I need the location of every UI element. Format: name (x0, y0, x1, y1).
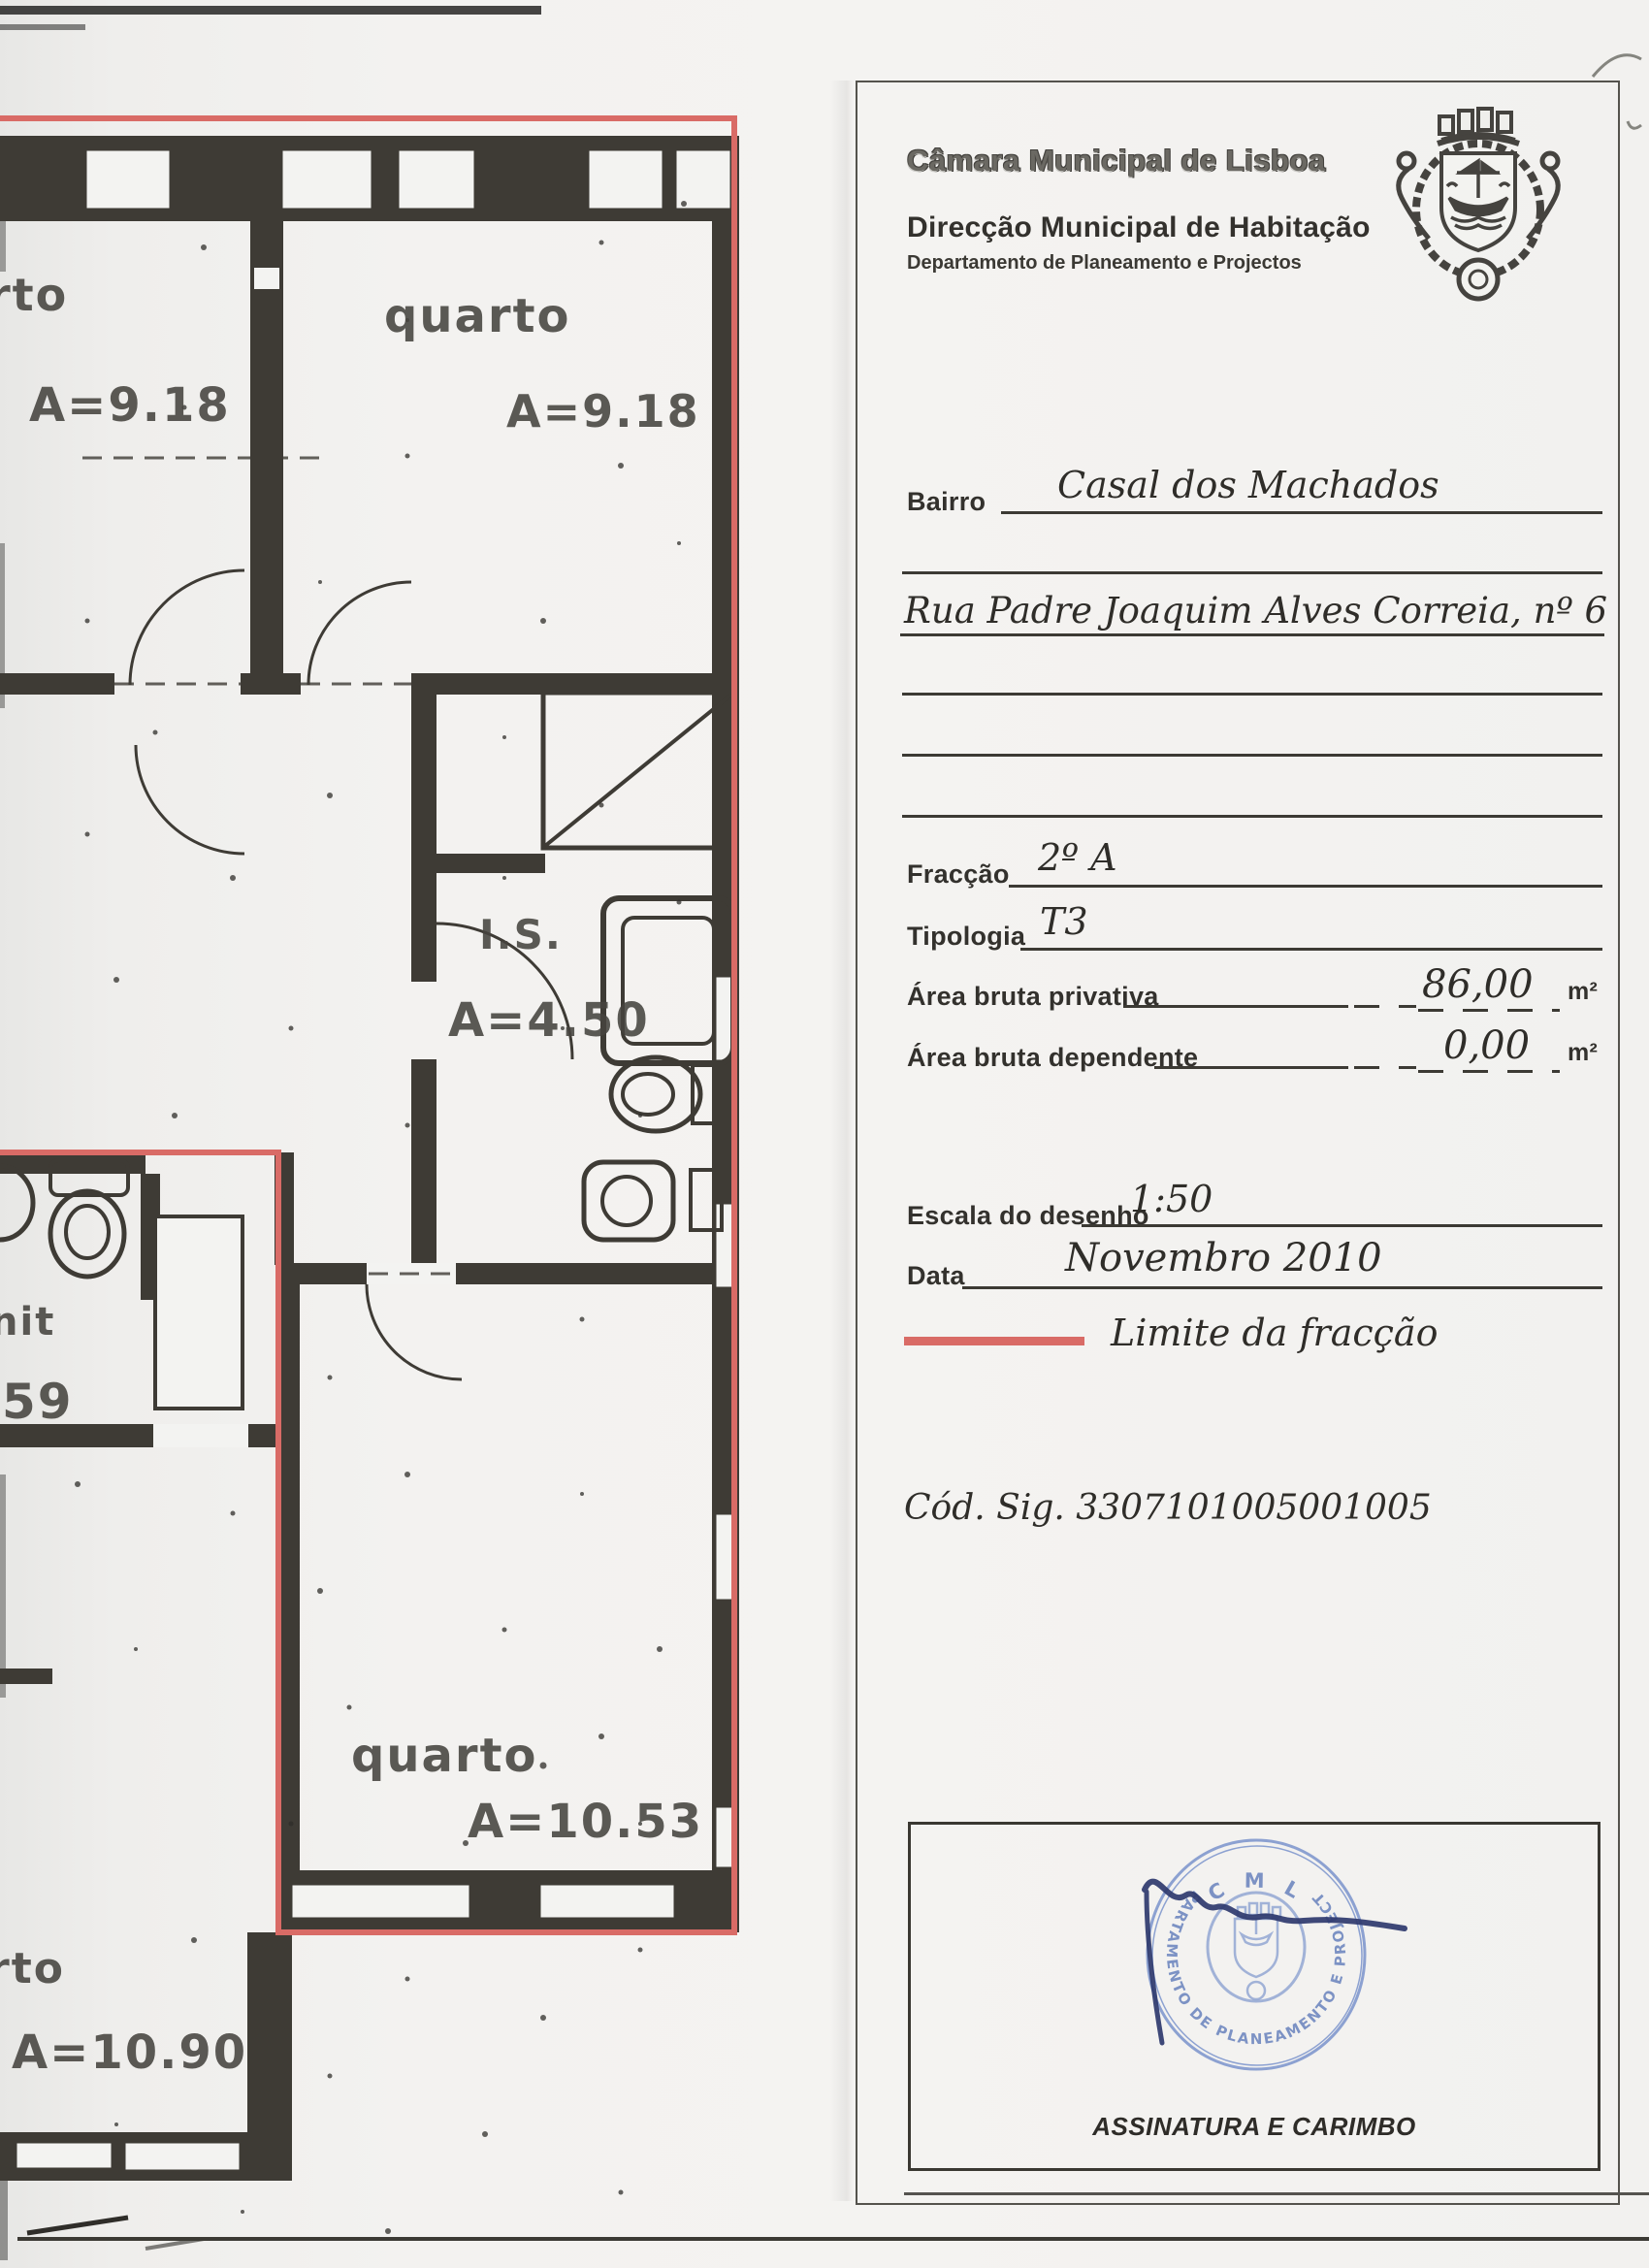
room-label-is-bathroom: I.S. (479, 911, 563, 958)
cod-sig: Cód. Sig. 3307101005001005 (904, 1488, 1432, 1528)
municipal-stamp: DEPARTAMENTO DE PLANEAMENTO E PROJECTOS … (1096, 1814, 1426, 2095)
footer-line-2 (17, 2237, 1649, 2241)
fraccao-underline (1009, 885, 1602, 888)
room-label-quarto-top-left: rto (0, 269, 68, 321)
area-privativa-value: 86,00 (1422, 962, 1534, 1007)
room-area-quarto-bottom: A=10.53 (468, 1795, 703, 1849)
fraccao-label: Fracção (907, 859, 1010, 890)
signature-caption: ASSINATURA E CARIMBO (911, 2112, 1598, 2142)
room-area-left-bathroom: 59 (2, 1374, 74, 1430)
room-area-is-bathroom: A=4.50 (448, 993, 650, 1048)
pen-mark (1591, 44, 1649, 150)
stamp-ring-text: DEPARTAMENTO DE PLANEAMENTO E PROJECTOS (1096, 1814, 1349, 2048)
lisbon-coat-of-arms-icon (1385, 101, 1571, 308)
area-privativa-unit: m² (1568, 978, 1598, 1006)
blank-line-3 (902, 754, 1602, 757)
blank-line-2 (902, 693, 1602, 696)
room-label-quarto-bottom: quarto (351, 1729, 538, 1783)
bairro-value: Casal dos Machados (1057, 464, 1439, 506)
scanned-floor-plan-document: rto A=9.18 quarto A=9.18 I.S. A=4.50 nit… (0, 0, 1649, 2268)
area-privativa-label: Área bruta privativa (907, 982, 1159, 1012)
data-label: Data (907, 1261, 965, 1291)
room-label-quarto-top: quarto (384, 289, 571, 343)
room-area-quarto-top-left: A=9.18 (29, 378, 231, 433)
area-dependente-value: 0,00 (1443, 1023, 1530, 1068)
blank-line-4 (902, 815, 1602, 818)
toilet-icon (611, 1057, 722, 1131)
escala-underline (1082, 1224, 1602, 1227)
room-label-left-bathroom: nit (0, 1300, 55, 1345)
left-bathroom-fixtures (0, 1160, 128, 1277)
tipologia-label: Tipologia (907, 922, 1025, 952)
bairro-underline (1001, 511, 1602, 514)
svg-text:C M L: C M L (1204, 1869, 1308, 1906)
data-value: Novembro 2010 (1065, 1236, 1382, 1280)
pen-scratches (27, 2218, 204, 2249)
tipologia-value: T3 (1040, 900, 1088, 943)
bairro-label: Bairro (907, 487, 986, 517)
data-underline (962, 1286, 1602, 1289)
room-label-bottom-left: rto (0, 1944, 65, 1993)
legend-label: Limite da fracção (1111, 1312, 1438, 1354)
area-privativa-underline (1123, 1005, 1348, 1008)
bidet-icon (584, 1162, 722, 1240)
floor-plan-drawing: rto A=9.18 quarto A=9.18 I.S. A=4.50 nit… (0, 0, 854, 2268)
escala-value: 1:50 (1130, 1178, 1212, 1220)
area-dependente-underline (1154, 1066, 1348, 1069)
footer-line-1 (904, 2192, 1649, 2195)
stamp-top-text: C M L (1204, 1869, 1308, 1906)
area-privativa-dashes (1354, 1005, 1416, 1008)
area-dependente-value-dashes (1418, 1070, 1560, 1073)
area-privativa-value-dashes (1418, 1009, 1560, 1012)
tipologia-underline (1020, 948, 1602, 951)
blank-line-1 (902, 571, 1602, 574)
room-area-bottom-left: A=10.90 (12, 2025, 247, 2080)
address-value: Rua Padre Joaquim Alves Correia, nº 6 (904, 590, 1607, 632)
fraction-limit-swatch (904, 1337, 1084, 1345)
org-title: Câmara Municipal de Lisboa (907, 144, 1326, 178)
svg-text:DEPARTAMENTO DE PLANEAMENTO E: DEPARTAMENTO DE PLANEAMENTO E PROJECTOS (1096, 1814, 1349, 2048)
closet (543, 693, 733, 848)
area-dependente-dashes (1354, 1066, 1416, 1069)
room-area-quarto-top: A=9.18 (506, 385, 700, 437)
address-underline (900, 633, 1604, 636)
paper-crease (830, 81, 854, 2201)
area-dependente-unit: m² (1568, 1039, 1598, 1067)
subdept-title: Departamento de Planeamento e Projectos (907, 252, 1302, 275)
dept-title: Direcção Municipal de Habitação (907, 211, 1371, 244)
fraccao-value: 2º A (1038, 836, 1117, 879)
